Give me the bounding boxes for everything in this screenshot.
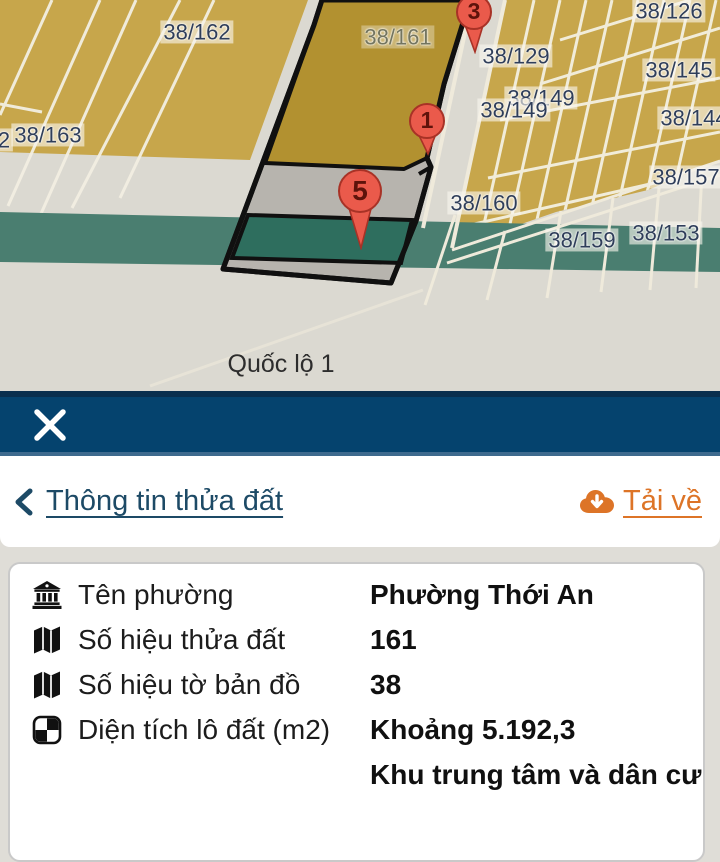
parcel-label: 38/159 (545, 228, 618, 251)
map-icon (32, 670, 62, 700)
parcel-label: 38/145 (642, 58, 715, 81)
detail-value: Khoảng 5.192,3 (370, 714, 575, 746)
parcel-label: 38/157 (649, 165, 720, 188)
parcel-detail-card: Tên phường Phường Thới An Số hiệu thửa đ… (8, 562, 705, 862)
parcel-label: 38/149 (477, 98, 550, 121)
detail-row: Khu trung tâm và dân cư (10, 752, 703, 797)
parcel-label: 38/163 (11, 123, 84, 146)
svg-text:3: 3 (468, 0, 481, 24)
cloud-download-icon (579, 489, 615, 515)
svg-text:5: 5 (352, 175, 368, 206)
detail-value: Khu trung tâm và dân cư (370, 759, 701, 791)
download-link[interactable]: Tải về (579, 485, 702, 518)
back-link-label: Thông tin thửa đất (46, 485, 283, 518)
close-icon[interactable] (32, 407, 68, 443)
detail-row: Tên phường Phường Thới An (10, 572, 703, 617)
detail-label: Tên phường (78, 579, 370, 611)
chevron-left-icon (14, 488, 34, 516)
detail-label: Diện tích lô đất (m2) (78, 714, 370, 746)
map-pin-1[interactable]: 1 (405, 102, 449, 161)
bank-icon (32, 580, 62, 610)
svg-text:1: 1 (421, 107, 434, 133)
detail-value: 38 (370, 669, 401, 701)
back-link[interactable]: Thông tin thửa đất (14, 485, 283, 518)
detail-label: Số hiệu tờ bản đồ (78, 669, 370, 701)
detail-value: Phường Thới An (370, 579, 594, 611)
map-pin-3[interactable]: 3 (452, 0, 496, 59)
bottom-sheet-titlebar (0, 391, 720, 456)
parcel-info-header: Thông tin thửa đất Tải về (0, 456, 720, 547)
area-quadrant-icon (32, 715, 62, 745)
parcel-label: 38/126 (632, 0, 705, 23)
parcel-label: 38/144 (657, 106, 720, 129)
detail-row: Số hiệu tờ bản đồ 38 (10, 662, 703, 707)
map-pin-5[interactable]: 5 (334, 168, 386, 255)
detail-value: 161 (370, 624, 417, 656)
no-icon (32, 760, 62, 790)
cadastral-map[interactable]: 38/16238/16138/12638/12938/14538/14938/1… (0, 0, 720, 391)
parcel-label: 38/161 (361, 25, 434, 48)
parcel-label: 38/162 (160, 20, 233, 43)
detail-row: Số hiệu thửa đất 161 (10, 617, 703, 662)
detail-label: Số hiệu thửa đất (78, 624, 370, 656)
parcel-label: 38/160 (447, 191, 520, 214)
download-link-label: Tải về (623, 485, 702, 518)
road-label: Quốc lộ 1 (224, 351, 337, 377)
map-icon (32, 625, 62, 655)
parcel-label: 38/153 (629, 221, 702, 244)
detail-row: Diện tích lô đất (m2) Khoảng 5.192,3 (10, 707, 703, 752)
